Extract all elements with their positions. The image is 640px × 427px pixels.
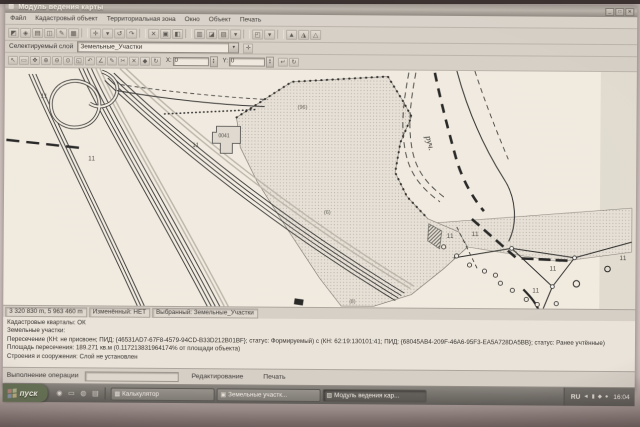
network-icon[interactable]: ▮ bbox=[592, 394, 595, 400]
info-panel: Кадастровые кварталы: ОКЗемельные участк… bbox=[3, 317, 635, 372]
svg-text:11: 11 bbox=[447, 234, 454, 240]
task-label: Модуль ведения кар... bbox=[334, 392, 399, 399]
scheduler-icon[interactable]: ● bbox=[605, 394, 608, 400]
toolbar-separator bbox=[185, 29, 192, 38]
zoom-layer-b-icon[interactable]: ◮ bbox=[298, 29, 309, 39]
svg-text:11: 11 bbox=[532, 288, 539, 294]
layers-icon[interactable]: ▤ bbox=[32, 27, 43, 37]
menu-window[interactable]: Окно bbox=[185, 16, 200, 23]
start-label: пуск bbox=[20, 388, 38, 397]
language-indicator[interactable]: RU bbox=[571, 393, 580, 400]
application-window: ▨ Модуль ведения карты _ □ ✕ Файл Кадаст… bbox=[3, 2, 638, 392]
zoom-layer-a-icon[interactable]: ▲ bbox=[286, 29, 297, 39]
edit-toolbar-icons: ↖▭✥⊕⊖⊙◱↶∠✎✂✕◆↻ bbox=[8, 55, 161, 65]
svg-text:11: 11 bbox=[472, 232, 479, 238]
edit-mode-button[interactable]: Редактирование bbox=[184, 371, 250, 382]
paste-object-icon[interactable]: ◧ bbox=[172, 28, 183, 38]
spin-down-icon[interactable]: ▾ bbox=[267, 62, 273, 66]
selected-layer-status: Выбранный: Земельные_Участки bbox=[152, 307, 258, 318]
table-icon[interactable]: ▦ bbox=[68, 28, 79, 38]
toolbar-separator bbox=[81, 28, 88, 37]
operation-progress bbox=[84, 371, 178, 382]
svg-text:11: 11 bbox=[549, 267, 556, 273]
toolbar-separator bbox=[277, 30, 284, 39]
x-coordinate-label: X: bbox=[166, 58, 172, 64]
building-number-label: 0041 bbox=[218, 133, 229, 139]
edit-attributes-icon[interactable]: ✎ bbox=[56, 28, 67, 38]
undo-icon[interactable]: ↺ bbox=[114, 28, 125, 38]
task-icon: ▣ bbox=[220, 391, 226, 398]
intersect-icon[interactable]: ▨ bbox=[218, 29, 229, 39]
zoom-rect-icon[interactable]: ◱ bbox=[74, 56, 84, 65]
photo-background: ▨ Модуль ведения карты _ □ ✕ Файл Кадаст… bbox=[0, 0, 640, 427]
topology-check-icon[interactable]: ◰ bbox=[252, 29, 263, 39]
modified-status: Изменённый: НЕТ bbox=[89, 307, 150, 317]
volume-icon[interactable]: ◄ bbox=[583, 394, 588, 400]
find-object-icon[interactable]: ◈ bbox=[20, 27, 31, 37]
pointer-icon[interactable]: ↖ bbox=[8, 55, 18, 64]
y-coordinate-group: Y: ▴ ▾ bbox=[223, 56, 274, 67]
system-tray: RU ◄▮◆● 16:04 bbox=[564, 388, 635, 406]
y-coordinate-input[interactable] bbox=[229, 57, 265, 66]
add-layer-button[interactable]: ✛ bbox=[243, 43, 253, 53]
delete-selection-icon[interactable]: ✕ bbox=[129, 56, 139, 65]
svg-text:11: 11 bbox=[88, 156, 95, 162]
svg-text:11: 11 bbox=[41, 94, 48, 100]
y-spinner[interactable]: ▴ ▾ bbox=[266, 56, 274, 67]
mail-icon[interactable]: ▤ bbox=[90, 387, 100, 399]
windows-logo-icon bbox=[8, 388, 17, 398]
toolbar-separator bbox=[243, 29, 250, 38]
reset-coords-icon[interactable]: ↻ bbox=[289, 57, 299, 66]
zoom-in-icon[interactable]: ⊕ bbox=[41, 56, 51, 65]
draw-options-icon[interactable]: ▾ bbox=[102, 28, 113, 38]
svg-text:11: 11 bbox=[192, 143, 199, 149]
open-object-icon[interactable]: ◫ bbox=[44, 28, 55, 38]
save-edits-icon[interactable]: ◆ bbox=[140, 56, 150, 65]
app-icon: ▨ bbox=[8, 4, 15, 11]
quick-launch-bar: ◉▭◍▤ bbox=[50, 387, 105, 399]
layer-selector-label: Селектируемый слой bbox=[9, 43, 73, 50]
spin-down-icon[interactable]: ▾ bbox=[211, 61, 217, 65]
delete-object-icon[interactable]: ✕ bbox=[148, 28, 159, 38]
zoom-full-icon[interactable]: ⊙ bbox=[63, 56, 73, 65]
folder-icon[interactable]: ▭ bbox=[66, 387, 76, 399]
task-label: Калькулятор bbox=[122, 390, 159, 397]
parcel-number-edge: (8) bbox=[349, 299, 355, 305]
close-button[interactable]: ✕ bbox=[625, 8, 634, 16]
menu-territorial-zone[interactable]: Территориальная зона bbox=[107, 16, 176, 23]
menu-file[interactable]: Файл bbox=[10, 15, 26, 22]
taskbar-task-2[interactable]: ▣Земельные участк... bbox=[216, 388, 320, 402]
menu-cadastral-object[interactable]: Кадастровый объект bbox=[35, 15, 98, 22]
zoom-out-icon[interactable]: ⊖ bbox=[52, 56, 62, 65]
x-spinner[interactable]: ▴ ▾ bbox=[210, 56, 218, 67]
operation-label: Выполнение операции bbox=[7, 372, 79, 380]
refresh-map-icon[interactable]: ↻ bbox=[151, 56, 161, 65]
minimize-button[interactable]: _ bbox=[605, 7, 614, 15]
draw-line-icon[interactable]: ✎ bbox=[107, 56, 117, 65]
topology-options-icon[interactable]: ▾ bbox=[264, 29, 275, 39]
cadastral-map: 0041 руч. bbox=[3, 68, 637, 309]
toolbar-separator bbox=[139, 29, 146, 38]
media-player-icon[interactable]: ◍ bbox=[78, 387, 88, 399]
select-area-icon[interactable]: ▭ bbox=[19, 55, 29, 64]
redo-icon[interactable]: ↷ bbox=[126, 28, 137, 38]
internet-icon[interactable]: ◉ bbox=[54, 387, 64, 399]
cursor-coordinates: 3 320 830 m, 5 963 460 m bbox=[5, 306, 87, 317]
layer-select-value: Земельные_Участки bbox=[78, 43, 228, 51]
svg-text:11: 11 bbox=[620, 256, 627, 262]
map-canvas[interactable]: 0041 руч. bbox=[3, 68, 637, 310]
ruler-icon[interactable]: ∠ bbox=[96, 56, 106, 65]
previous-view-icon[interactable]: ↶ bbox=[85, 56, 95, 65]
start-button[interactable]: пуск bbox=[3, 384, 48, 402]
union-icon[interactable]: ▥ bbox=[194, 29, 205, 39]
pan-icon[interactable]: ✥ bbox=[30, 55, 40, 64]
copy-object-icon[interactable]: ▣ bbox=[160, 28, 171, 38]
split-icon[interactable]: ◪ bbox=[206, 29, 217, 39]
coord-action-icons: ↵↻ bbox=[278, 57, 299, 66]
task-buttons: ▦Калькулятор▣Земельные участк...▨Модуль … bbox=[108, 387, 561, 403]
print-button[interactable]: Печать bbox=[256, 372, 292, 383]
tray-icons: ◄▮◆● bbox=[583, 394, 608, 400]
task-icon: ▨ bbox=[326, 392, 332, 399]
draw-contour-icon[interactable]: ✛ bbox=[90, 28, 101, 38]
menu-object[interactable]: Объект bbox=[209, 16, 231, 23]
task-icon: ▦ bbox=[114, 390, 120, 397]
parcel-number-bottom: (6) bbox=[324, 210, 331, 216]
zoom-layer-c-icon[interactable]: △ bbox=[310, 29, 321, 39]
chevron-down-icon[interactable]: ▾ bbox=[228, 43, 238, 52]
apply-coords-icon[interactable]: ↵ bbox=[278, 57, 288, 66]
maximize-button[interactable]: □ bbox=[615, 8, 624, 16]
intersect-options-icon[interactable]: ▾ bbox=[230, 29, 241, 39]
antivirus-icon[interactable]: ◆ bbox=[598, 394, 602, 400]
cut-node-icon[interactable]: ✂ bbox=[118, 56, 128, 65]
map-shadow-edge bbox=[599, 72, 637, 309]
menu-print[interactable]: Печать bbox=[240, 16, 261, 23]
y-coordinate-label: Y: bbox=[223, 58, 228, 64]
layer-select[interactable]: Земельные_Участки ▾ bbox=[77, 41, 239, 53]
parcel-number-top: (96) bbox=[298, 105, 308, 111]
x-coordinate-group: X: ▴ ▾ bbox=[166, 55, 218, 66]
taskbar-task-3[interactable]: ▨Модуль ведения кар... bbox=[322, 389, 426, 403]
taskbar-clock[interactable]: 16:04 bbox=[613, 394, 629, 401]
task-label: Земельные участк... bbox=[228, 391, 287, 398]
taskbar: пуск ◉▭◍▤ ▦Калькулятор▣Земельные участк.… bbox=[3, 384, 635, 406]
taskbar-task-1[interactable]: ▦Калькулятор bbox=[110, 387, 214, 401]
x-coordinate-input[interactable] bbox=[173, 56, 209, 65]
select-parcel-icon[interactable]: ◩ bbox=[8, 27, 19, 37]
